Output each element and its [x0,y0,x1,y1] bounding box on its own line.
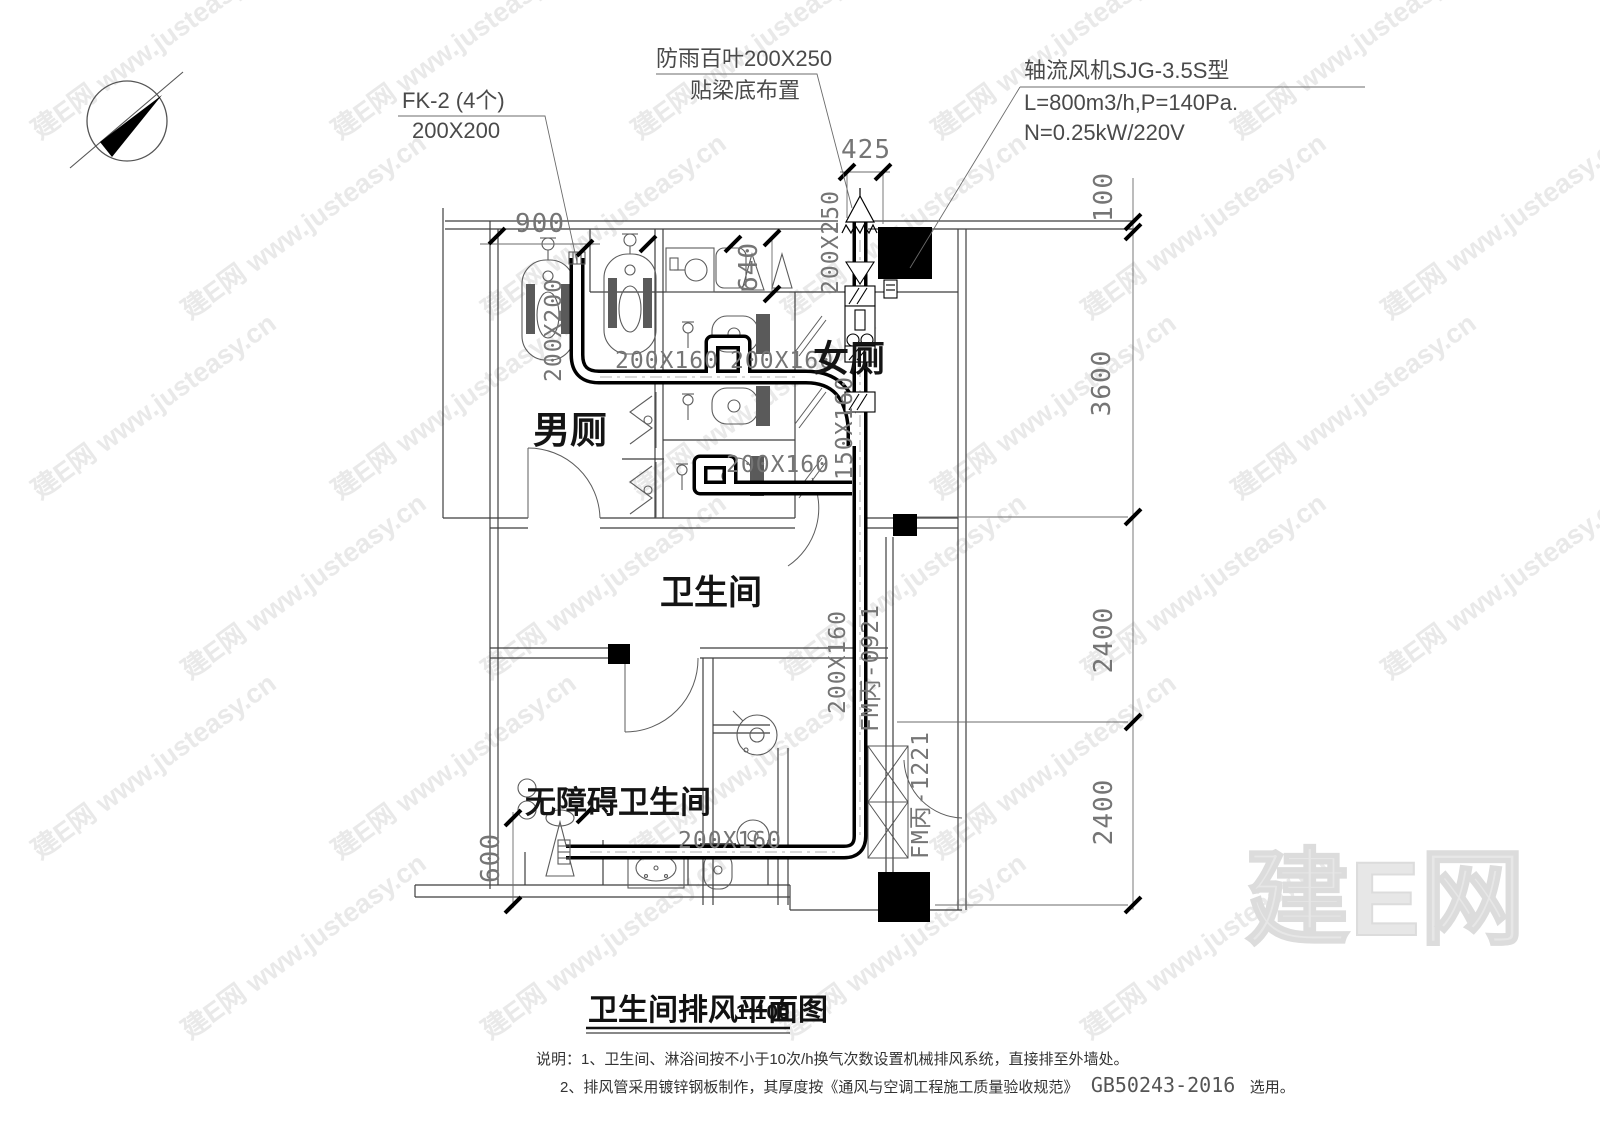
duct-size-label: 200X160 [678,828,782,854]
duct-size-label: 200X160 [726,452,830,478]
watermark-tile: 建E网 www.justeasy.cn [26,668,282,865]
duct-size-label: 200X250 [818,190,844,294]
column [878,227,932,279]
fire-damper-symbol [868,746,908,858]
fk2-label-line1: FK-2 (4个) [402,88,505,113]
drawing-title: 卫生间排风平面图 [588,994,828,1027]
fan-label-line3: N=0.25kW/220V [1024,120,1185,145]
notes-block: 说明：1、卫生间、淋浴间按不小于10次/h换气次数设置机械排风系统，直接排至外墙… [536,1051,1295,1097]
watermark-tile: 建E网 www.justeasy.cn [626,0,882,145]
urinal-symbol [630,392,656,448]
note-line1: 说明：1、卫生间、淋浴间按不小于10次/h换气次数设置机械排风系统，直接排至外墙… [536,1051,1129,1068]
watermark-tile: 建E网 www.justeasy.cn [1226,0,1482,145]
dim-425: 425 [841,135,891,165]
duct-size-label: 200X200 [541,278,567,382]
dim-2400: 2400 [1089,607,1119,674]
dim-640: 640 [734,242,764,292]
duct-size-label: 200X160 [615,348,719,374]
squat-toilet-symbol [604,234,656,354]
fan-label-line1: 轴流风机SJG-3.5S型 [1024,58,1229,83]
watermark-tile: 建E网 www.justeasy.cn [326,668,582,865]
louver-label-line1: 防雨百叶200X250 [656,46,832,71]
note-line2-code: GB50243-2016 [1091,1073,1236,1097]
column [878,872,930,922]
note-line2: 2、排风管采用镀锌钢板制作，其厚度按《通风与空调工程施工质量验收规范》 GB50… [560,1073,1295,1097]
drawing-scale: 1:100 [736,1001,790,1024]
doors [528,316,962,818]
watermark-tile: 建E网 www.justeasy.cn [26,308,282,505]
watermark-tile: 建E网 www.justeasy.cn [176,848,432,1045]
watermark-tile: 建E网 www.justeasy.cn [926,308,1182,505]
watermark-tile: 建E网 www.justeasy.cn [1376,488,1600,685]
fire-damper-label: FM丙-1221 [908,731,934,859]
louver-label-line2: 贴梁底布置 [690,78,800,103]
fan-label-line2: L=800m3/h,P=140Pa. [1024,90,1238,115]
room-label-female: 女厕 [813,338,885,379]
room-label-bathroom: 卫生间 [660,574,762,612]
fk2-label-line2: 200X200 [412,118,500,143]
dim-3600: 3600 [1087,350,1117,417]
dim-600: 600 [476,833,506,883]
watermark-tile: 建E网 www.justeasy.cn [176,128,432,325]
watermark-tile: 建E网 www.justeasy.cn [1376,128,1600,325]
watermark-layer: 建E网 www.justeasy.cn 建E网 www.justeasy.cn … [26,0,1600,1045]
room-label-male: 男厕 [533,410,607,451]
fire-damper-label: FM丙-0921 [858,604,884,732]
watermark-tile: 建E网 www.justeasy.cn [1076,128,1332,325]
walls [415,208,1135,910]
column [608,644,630,664]
dim-2400: 2400 [1089,779,1119,846]
cad-sheet: 建E网 www.justeasy.cn 建E网 www.justeasy.cn … [0,0,1600,1140]
watermark-tile: 建E网 www.justeasy.cn [776,128,1032,325]
watermark-tile: 建E网 www.justeasy.cn [926,668,1182,865]
note-line2-post: 选用。 [1250,1079,1295,1096]
watermark-tile: 建E网 www.justeasy.cn [1226,308,1482,505]
duct-size-label: 200X160 [825,610,851,714]
note-line2-pre: 2、排风管采用镀锌钢板制作，其厚度按《通风与空调工程施工质量验收规范》 [560,1078,1078,1096]
watermark-tile: 建E网 www.justeasy.cn [176,488,432,685]
column [893,514,917,536]
dim-100: 100 [1089,172,1119,222]
watermark-tile: 建E网 www.justeasy.cn [26,0,282,145]
duct-size-label: 150X160 [832,376,858,480]
dim-900: 900 [515,209,565,239]
watermark-big: 建E网 [1245,841,1525,958]
sink-symbol [666,248,714,292]
room-label-accessible: 无障碍卫生间 [525,785,711,820]
room-labels: 男厕 女厕 卫生间 无障碍卫生间 [525,338,885,820]
